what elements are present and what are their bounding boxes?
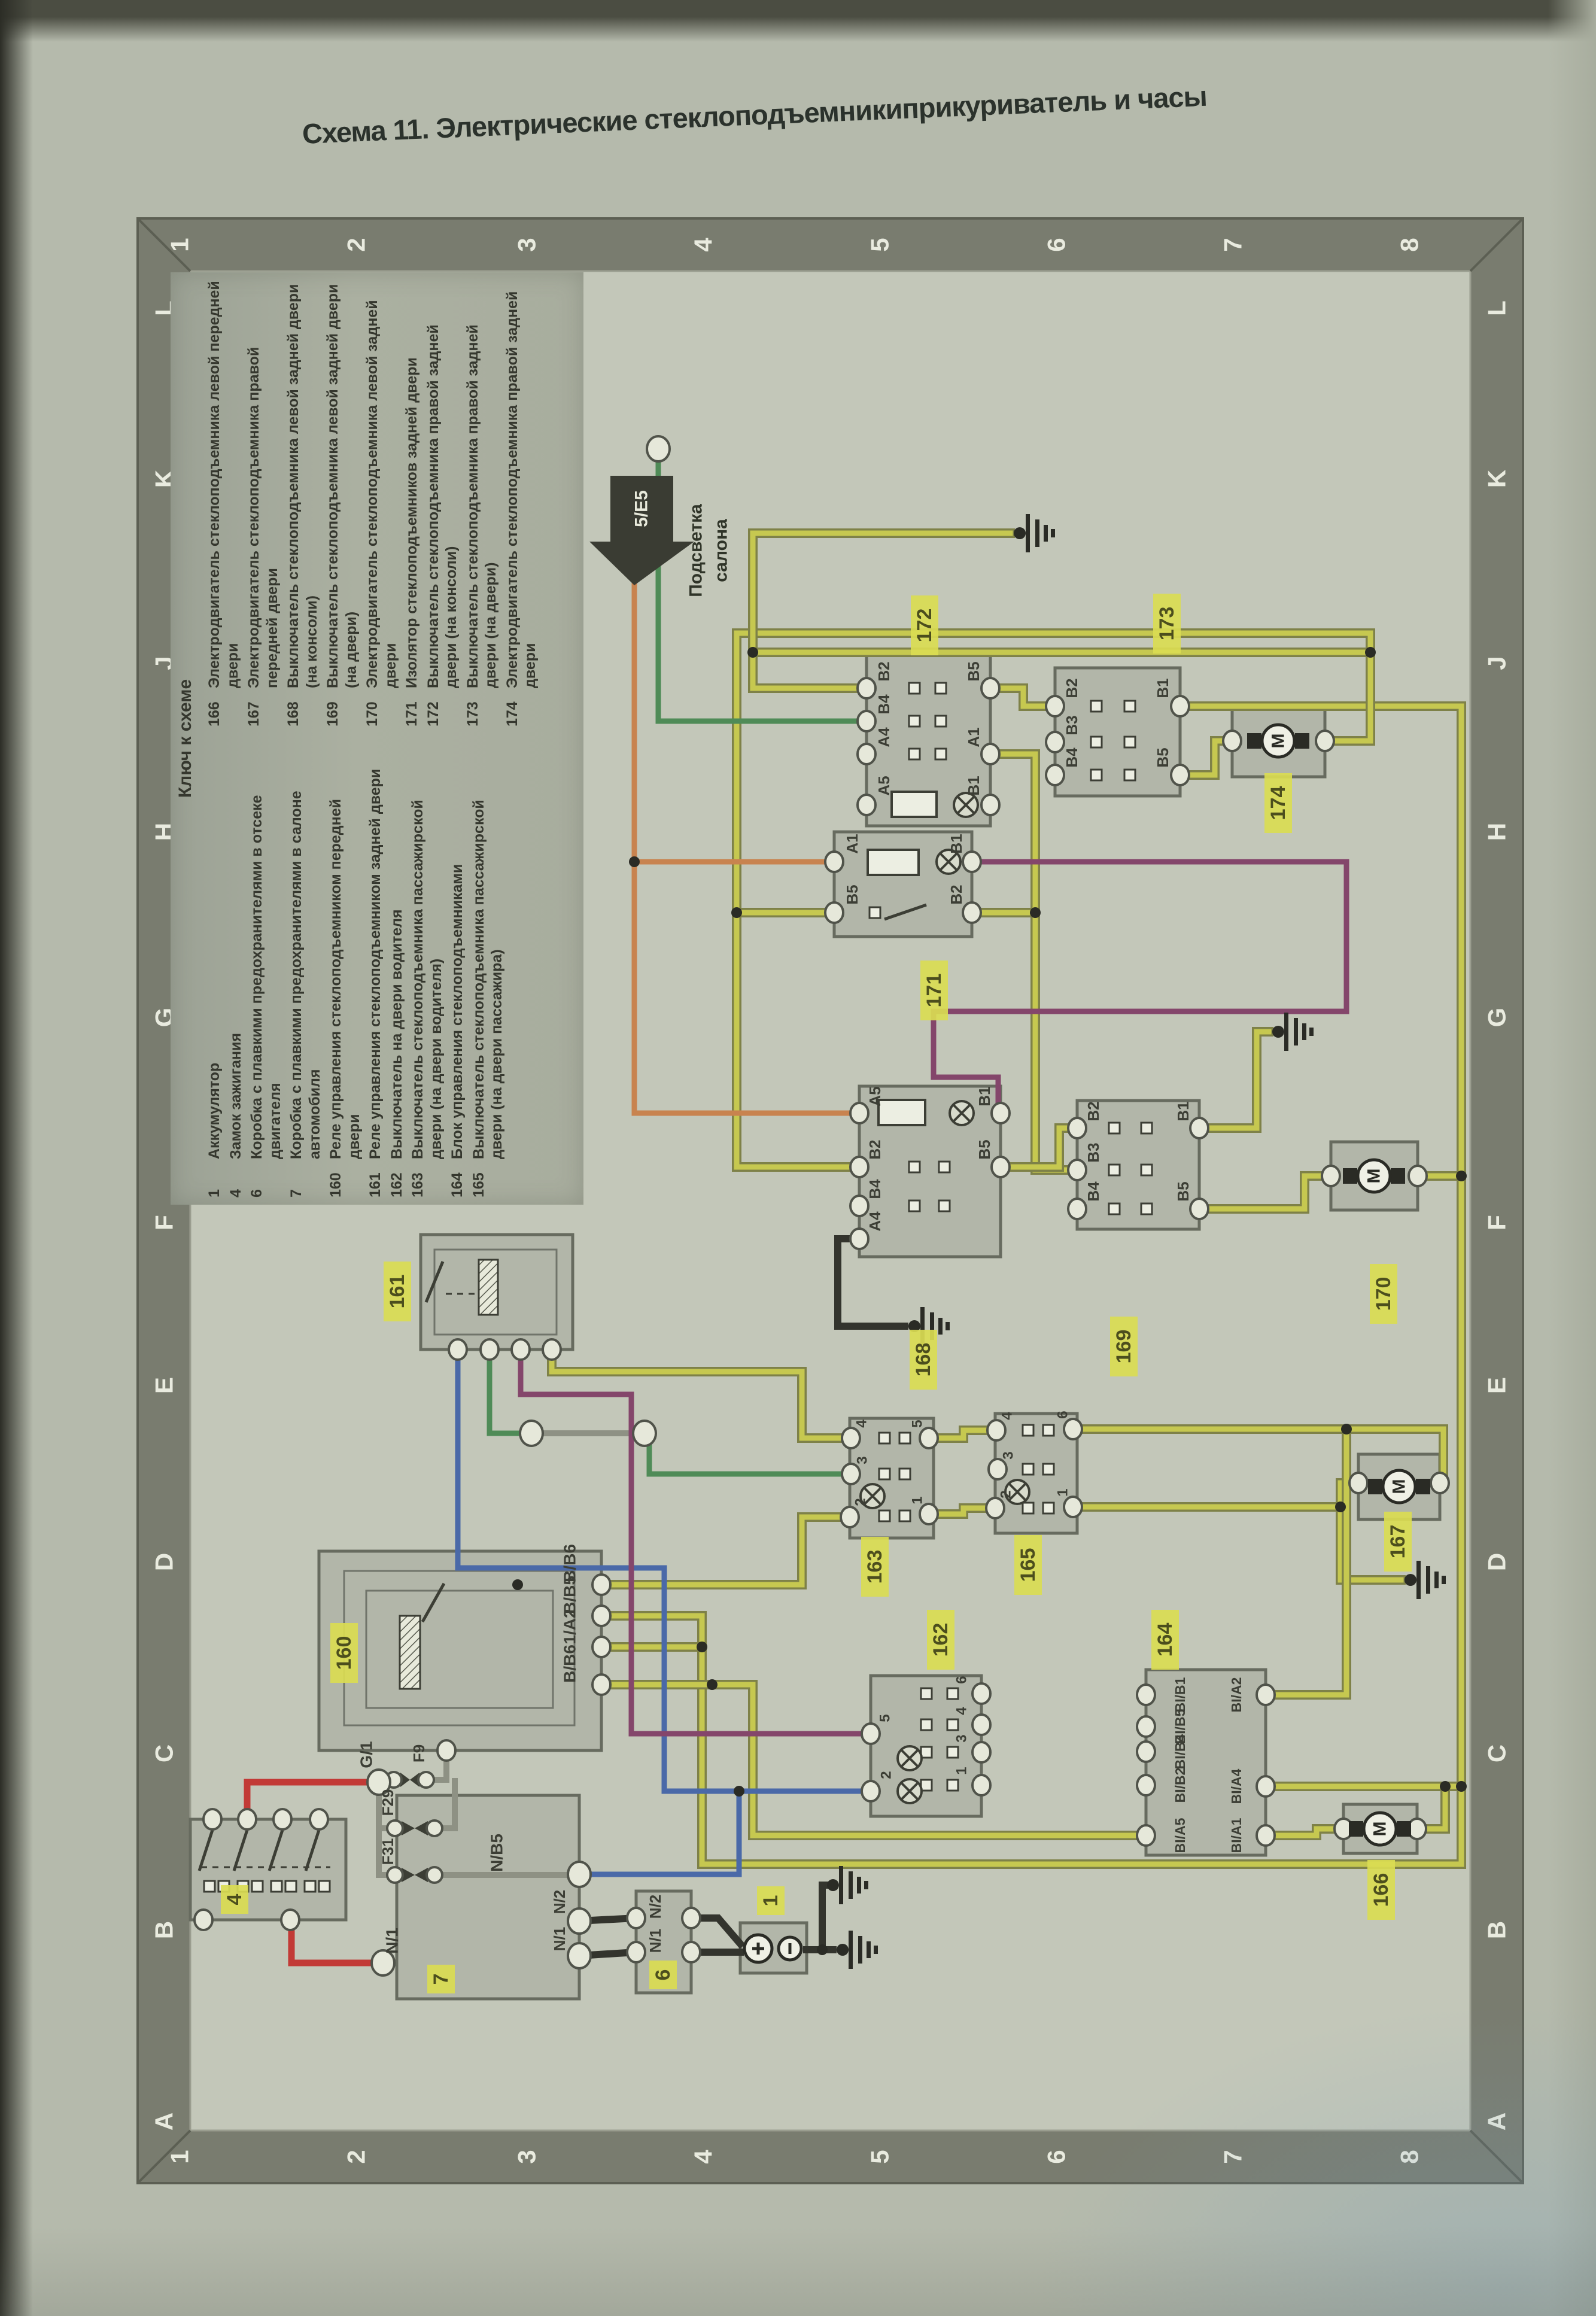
pin-label: G/1 xyxy=(357,1741,376,1768)
pin xyxy=(1137,1741,1155,1762)
contact xyxy=(947,1688,958,1699)
pin-label: N/1 xyxy=(551,1927,569,1951)
junction-dot xyxy=(1335,1502,1346,1512)
pin-label: B1 xyxy=(975,1086,993,1106)
ground-icon xyxy=(1434,1572,1439,1588)
pin xyxy=(920,1428,938,1448)
pin-label: 1 xyxy=(1055,1488,1071,1496)
grid-col-label: 1 xyxy=(166,238,194,251)
contact xyxy=(1091,770,1102,780)
contact xyxy=(285,1881,296,1892)
contact xyxy=(909,683,920,694)
junction-dot xyxy=(734,1786,744,1797)
pin xyxy=(1257,1825,1275,1846)
grid-row-label: D xyxy=(150,1553,178,1571)
contact xyxy=(899,1433,910,1443)
grid-row-label: B xyxy=(150,1921,178,1939)
contact xyxy=(305,1881,315,1892)
legend-entry-text: Замок зажигания xyxy=(227,750,245,1160)
pin xyxy=(992,1103,1010,1123)
pin xyxy=(825,852,843,872)
pin xyxy=(1046,696,1064,716)
component-number: 166 xyxy=(1370,1873,1393,1907)
legend-box: Ключ к схеме 1Аккумулятор4Замок зажигани… xyxy=(171,272,583,1205)
legend-entry: 170Электродвигатель стеклоподъемника лев… xyxy=(363,279,400,727)
legend-entry: 166Электродвигатель стеклоподъемника лев… xyxy=(205,279,242,727)
pin xyxy=(981,744,999,764)
legend-entry-text: Реле управления стеклоподъемником задней… xyxy=(366,750,385,1160)
legend-entry-number: 160 xyxy=(327,1160,363,1197)
contact xyxy=(1023,1503,1033,1513)
grid-col-label: 8 xyxy=(1396,238,1424,251)
grid-row-label: B xyxy=(1483,1921,1511,1939)
contact xyxy=(1141,1203,1152,1214)
pin xyxy=(858,795,875,815)
pin xyxy=(194,1910,212,1930)
pin-label: B1 xyxy=(1174,1101,1192,1121)
legend-entry-number: 169 xyxy=(324,689,360,727)
legend-entry-text: Реле управления стеклоподъемником передн… xyxy=(327,750,363,1160)
ground-icon xyxy=(1044,525,1048,542)
pin xyxy=(981,795,999,815)
ground-icon xyxy=(867,1941,871,1958)
ground-icon xyxy=(1014,527,1026,539)
pin xyxy=(920,1504,938,1524)
relay-coil xyxy=(479,1260,498,1315)
junction-dot xyxy=(1341,1424,1352,1434)
legend-entry: 6Коробка с плавкими предохранителями в о… xyxy=(248,750,284,1197)
pin xyxy=(842,1464,860,1484)
junction-dot xyxy=(1456,1781,1467,1792)
pin xyxy=(512,1339,530,1360)
component-number: 1 xyxy=(759,1895,782,1907)
pin-label: A5 xyxy=(866,1086,884,1106)
junction-dot xyxy=(817,1944,828,1955)
pin xyxy=(1349,1473,1367,1493)
legend-entry-number: 165 xyxy=(470,1160,506,1197)
pin xyxy=(963,852,981,872)
junction-dot xyxy=(1030,907,1041,918)
ground-icon xyxy=(837,1944,849,1956)
pin-label: B4 xyxy=(1084,1181,1102,1202)
pin-label: A1 xyxy=(843,834,861,853)
ground-icon xyxy=(1426,1566,1430,1594)
pin-label: BI/A1 xyxy=(1229,1817,1244,1853)
component-number: 161 xyxy=(386,1275,409,1309)
legend-entry-number: 167 xyxy=(245,689,281,727)
pin-label: N/2 xyxy=(646,1895,664,1919)
legend-entry: 169Выключатель стеклоподъемника левой за… xyxy=(324,279,360,727)
pin-label: F31 xyxy=(379,1838,397,1865)
pin-label: B5 xyxy=(1174,1181,1192,1201)
legend-entry: 167Электродвигатель стеклоподъемника пра… xyxy=(245,279,281,727)
grid-col-label: 6 xyxy=(1042,238,1071,251)
pin xyxy=(1068,1160,1086,1180)
legend-entry: 161Реле управления стеклоподъемником зад… xyxy=(366,750,385,1197)
resistor xyxy=(878,1100,925,1125)
pin xyxy=(1064,1497,1082,1517)
contact xyxy=(1023,1464,1033,1475)
wire xyxy=(822,1885,825,1950)
ground-icon xyxy=(1416,1561,1421,1599)
pin-label: B2 xyxy=(1063,678,1081,698)
pin xyxy=(963,902,981,923)
pin-label: A1 xyxy=(965,727,983,747)
pin xyxy=(1190,1118,1208,1138)
page-edge-left xyxy=(0,0,33,2316)
contact xyxy=(939,1162,950,1172)
junction-dot xyxy=(1365,647,1376,658)
component-number: 170 xyxy=(1372,1277,1395,1311)
pin xyxy=(1171,765,1189,785)
contact xyxy=(909,749,920,759)
contact xyxy=(1124,770,1135,780)
grid-row-label: D xyxy=(1483,1553,1511,1571)
pin xyxy=(1064,1419,1082,1439)
legend-entry-number: 161 xyxy=(366,1160,385,1197)
pin-label: BI/B4 xyxy=(1172,1734,1188,1769)
pin-label: B5 xyxy=(843,885,861,904)
pin-label: 1 xyxy=(954,1767,970,1774)
pin xyxy=(972,1742,990,1762)
legend-entry-text: Электродвигатель стеклоподъемника левой … xyxy=(363,279,400,689)
pin-label: 4 xyxy=(954,1707,970,1715)
ground-icon xyxy=(864,1881,868,1889)
legend-entry: 4Замок зажигания xyxy=(227,750,245,1197)
grid-col-label: 5 xyxy=(866,2150,894,2163)
pin-label: B2 xyxy=(875,661,893,681)
pin-label: A4 xyxy=(866,1211,884,1232)
legend-entry-number: 1 xyxy=(205,1160,224,1197)
pin-label: B1 xyxy=(947,834,965,853)
legend-entry-text: Электродвигатель стеклоподъемника правой… xyxy=(503,279,540,689)
pin-label: B1 xyxy=(1154,678,1172,698)
pin xyxy=(862,1724,880,1744)
contact xyxy=(879,1510,890,1521)
pin-label: B5 xyxy=(975,1139,993,1159)
arrow-caption: салона xyxy=(712,519,731,582)
ground-icon xyxy=(1051,529,1055,537)
contact xyxy=(1023,1425,1033,1436)
legend-entry-text: Электродвигатель стеклоподъемника правой… xyxy=(245,279,281,689)
pin xyxy=(1322,1166,1340,1186)
ground-icon xyxy=(1026,514,1030,552)
grid-row-label: K xyxy=(1483,470,1511,488)
legend-entry: 172Выключатель стеклоподъемника правой з… xyxy=(424,279,461,727)
contact xyxy=(1091,737,1102,747)
pin-label: 3 xyxy=(1001,1451,1017,1459)
fuse-terminal xyxy=(427,1820,442,1836)
contact xyxy=(1091,701,1102,712)
grid-row-label: E xyxy=(150,1377,178,1394)
pin xyxy=(1257,1776,1275,1797)
pin-label: 1/A2 xyxy=(561,1609,579,1644)
grid-row-label: A xyxy=(150,2113,178,2130)
ground-icon xyxy=(874,1946,878,1954)
ground-icon xyxy=(938,1318,943,1335)
legend-column-1: 1Аккумулятор4Замок зажигания6Коробка с п… xyxy=(205,750,543,1197)
legend-entry-text: Выключатель стеклоподъемника правой задн… xyxy=(464,279,500,689)
contact xyxy=(271,1881,282,1892)
pin xyxy=(981,678,999,698)
pin xyxy=(203,1809,221,1829)
ground-icon xyxy=(858,1936,862,1964)
pin-label: N/1 xyxy=(383,1928,402,1954)
pin xyxy=(449,1339,467,1360)
pin-label: B4 xyxy=(866,1179,884,1199)
component-number: 165 xyxy=(1017,1548,1039,1582)
legend-columns: 1Аккумулятор4Замок зажигания6Коробка с п… xyxy=(205,272,543,1205)
pin-label: F9 xyxy=(410,1744,428,1762)
pin xyxy=(1190,1199,1208,1219)
pin xyxy=(273,1809,291,1829)
grid-col-label: 2 xyxy=(342,2150,370,2163)
contact xyxy=(909,1200,920,1211)
contact xyxy=(935,749,946,759)
component-number: 172 xyxy=(913,609,936,643)
pin xyxy=(972,1775,990,1795)
connector xyxy=(647,436,670,461)
grid-col-label: 4 xyxy=(689,238,718,252)
pin-label: 4 xyxy=(854,1420,870,1428)
ground-icon xyxy=(857,1877,861,1893)
pin-label: N/B5 xyxy=(488,1834,506,1872)
ground-icon xyxy=(1284,1013,1288,1051)
contact xyxy=(921,1688,932,1699)
pin xyxy=(1137,1825,1155,1846)
contact xyxy=(1043,1503,1054,1513)
contact xyxy=(1109,1123,1120,1133)
component-number: 174 xyxy=(1267,786,1290,820)
legend-entry-text: Выключатель стеклоподъемника левой задне… xyxy=(324,279,360,689)
pin xyxy=(592,1575,610,1595)
pin-label: B/B5 xyxy=(561,1576,579,1614)
pin-label: 5 xyxy=(910,1420,926,1427)
junction-dot xyxy=(697,1642,707,1652)
legend-entry: 164Блок управления стеклоподъемниками xyxy=(448,750,467,1197)
contact xyxy=(204,1881,215,1892)
fuse-terminal xyxy=(387,1820,403,1836)
legend-entry-number: 164 xyxy=(448,1160,467,1197)
pin xyxy=(862,1781,880,1801)
pin xyxy=(682,1942,700,1962)
pin xyxy=(238,1809,256,1829)
relay-160 xyxy=(319,1551,601,1750)
contact xyxy=(879,1469,890,1479)
pin-label: A4 xyxy=(875,727,893,747)
component-number: 168 xyxy=(912,1343,935,1377)
pin xyxy=(1068,1199,1086,1219)
pin-label: 4 xyxy=(999,1412,1016,1420)
contact xyxy=(1124,701,1135,712)
pin xyxy=(592,1674,610,1695)
ground-icon xyxy=(1309,1028,1314,1036)
contact xyxy=(1141,1123,1152,1133)
legend-entry: 168Выключатель стеклоподъемника левой за… xyxy=(284,279,321,727)
pin-label: B5 xyxy=(1154,747,1172,767)
contact xyxy=(921,1719,932,1730)
grid-row-label: F xyxy=(1483,1215,1511,1230)
pin xyxy=(1316,731,1334,751)
page-edge-top xyxy=(0,0,1596,42)
contact xyxy=(899,1469,910,1479)
grid-row-label: C xyxy=(1483,1744,1511,1762)
ground-icon xyxy=(1442,1576,1446,1584)
connector xyxy=(633,1421,656,1446)
connector xyxy=(568,1943,591,1968)
scanned-page: 1122334455667788LLKKJJHHGGFFEEDDCCBBAAMM… xyxy=(0,0,1596,2316)
ground-icon xyxy=(849,1931,853,1969)
grid-col-label: 4 xyxy=(689,2150,718,2164)
grid-col-label: 3 xyxy=(513,2150,541,2163)
window-control-unit-164 xyxy=(1146,1670,1266,1855)
legend-title: Ключ к схеме xyxy=(175,272,196,1205)
legend-entry-number: 168 xyxy=(284,689,321,727)
ground-icon xyxy=(849,1871,853,1899)
legend-entry-number: 172 xyxy=(424,689,461,727)
pin xyxy=(310,1809,328,1829)
fuse-terminal xyxy=(418,1772,434,1788)
pin-label: B4 xyxy=(875,694,893,715)
legend-entry: 174Электродвигатель стеклоподъемника пра… xyxy=(503,279,540,727)
legend-entry-text: Аккумулятор xyxy=(205,750,224,1160)
grid-col-label: 7 xyxy=(1219,238,1247,251)
page-edge-bottom xyxy=(0,2226,1596,2316)
pin xyxy=(842,1428,860,1448)
pin xyxy=(1068,1118,1086,1138)
component-number: 4 xyxy=(223,1893,246,1905)
contact xyxy=(939,1200,950,1211)
pin-label: B2 xyxy=(947,885,965,904)
grid-row-label: F xyxy=(150,1215,178,1230)
grid-row-label: E xyxy=(1483,1377,1511,1394)
pin-label: N/2 xyxy=(551,1890,569,1914)
pin xyxy=(989,1459,1007,1479)
pin xyxy=(592,1606,610,1626)
motor-brush xyxy=(1343,1168,1357,1184)
legend-entry: 163Выключатель стеклоподъемника пассажир… xyxy=(409,750,445,1197)
contact xyxy=(1109,1203,1120,1214)
legend-entry: 173Выключатель стеклоподъемника правой з… xyxy=(464,279,500,727)
pin xyxy=(1137,1716,1155,1737)
component-number: 163 xyxy=(864,1550,886,1584)
grid-col-label: 3 xyxy=(513,238,541,251)
legend-content: Ключ к схеме 1Аккумулятор4Замок зажигани… xyxy=(171,272,583,1205)
legend-entry-text: Выключатель стеклоподъемника правой задн… xyxy=(424,279,461,689)
grid-row-label: C xyxy=(150,1744,178,1762)
motor-letter: M xyxy=(1269,734,1288,749)
legend-entry-text: Выключатель стеклоподъемника левой задне… xyxy=(284,279,321,689)
legend-entry-text: Изолятор стеклоподъемников задней двери xyxy=(403,279,421,689)
pin xyxy=(858,711,875,731)
ground-icon xyxy=(839,1866,843,1904)
contact xyxy=(899,1510,910,1521)
ground-icon xyxy=(1405,1574,1416,1586)
pin-label: 1 xyxy=(910,1496,926,1504)
contact xyxy=(1043,1425,1054,1436)
arrow-caption: Подсветка xyxy=(686,504,706,597)
contact xyxy=(921,1780,932,1791)
grid-row-label: L xyxy=(1483,300,1511,316)
fuse-terminal xyxy=(427,1867,442,1883)
motor-brush xyxy=(1349,1821,1363,1837)
motor-brush xyxy=(1368,1479,1382,1494)
contact xyxy=(935,716,946,727)
pin-label: BI/A5 xyxy=(1172,1817,1188,1853)
legend-entry-text: Электродвигатель стеклоподъемника левой … xyxy=(205,279,242,689)
legend-entry-text: Коробка с плавкими предохранителями в от… xyxy=(248,750,284,1160)
junction-dot xyxy=(1440,1781,1451,1792)
resistor xyxy=(868,850,919,875)
pin xyxy=(1137,1775,1155,1795)
ground-icon xyxy=(827,1879,839,1891)
legend-entry-number: 6 xyxy=(248,1160,284,1197)
pin xyxy=(543,1339,561,1360)
legend-entry-number: 162 xyxy=(388,1160,406,1197)
ground-icon xyxy=(1272,1026,1284,1038)
pin xyxy=(987,1420,1005,1440)
legend-entry-number: 170 xyxy=(363,689,400,727)
component-number: 164 xyxy=(1154,1623,1177,1657)
fuse-terminal xyxy=(387,1867,403,1883)
pin xyxy=(627,1942,645,1962)
motor-brush xyxy=(1391,1168,1405,1184)
pin-label: A5 xyxy=(875,776,893,795)
component-number: 6 xyxy=(652,1969,674,1981)
component-number: 7 xyxy=(430,1974,452,1985)
legend-entry-number: 173 xyxy=(464,689,500,727)
pin xyxy=(592,1637,610,1657)
pin-label: 2 xyxy=(878,1771,895,1779)
junction-dot xyxy=(731,907,742,918)
legend-entry-text: Выключатель стеклоподъемника пассажирско… xyxy=(470,750,506,1160)
resistor xyxy=(892,792,937,817)
legend-entry: 171Изолятор стеклоподъемников задней две… xyxy=(403,279,421,727)
pin-label: F29 xyxy=(379,1789,397,1816)
component-number: 169 xyxy=(1112,1330,1135,1364)
contact xyxy=(1141,1165,1152,1175)
pin-label: B3 xyxy=(1063,715,1081,735)
legend-entry: 7Коробка с плавкими предохранителями в с… xyxy=(287,750,324,1197)
contact xyxy=(1043,1464,1054,1475)
grid-row-label: J xyxy=(1483,656,1511,670)
junction-dot xyxy=(512,1579,523,1590)
pin xyxy=(1171,696,1189,716)
component-number: 160 xyxy=(333,1636,355,1670)
legend-entry: 1Аккумулятор xyxy=(205,750,224,1197)
pin-label: BI/A2 xyxy=(1229,1677,1244,1713)
pin-label: BI/A4 xyxy=(1229,1768,1244,1804)
ground-icon xyxy=(1035,519,1039,547)
contact xyxy=(947,1747,958,1758)
grid-row-label: G xyxy=(1483,1008,1511,1028)
pin-label: B5 xyxy=(965,661,983,681)
ground-icon xyxy=(946,1322,950,1330)
pin-label: 3 xyxy=(855,1456,871,1464)
pin xyxy=(1257,1685,1275,1705)
junction-dot xyxy=(747,647,758,658)
motor-brush xyxy=(1397,1821,1411,1837)
contact xyxy=(909,1162,920,1172)
pin-label: 6 xyxy=(954,1676,970,1683)
pin-label: B/B6 xyxy=(561,1645,579,1683)
pin xyxy=(992,1157,1010,1177)
connector xyxy=(568,1908,591,1934)
pin xyxy=(1431,1473,1449,1493)
pin-label: N/1 xyxy=(646,1929,664,1953)
grid-col-label: 5 xyxy=(866,238,894,251)
legend-entry-number: 171 xyxy=(403,689,421,727)
